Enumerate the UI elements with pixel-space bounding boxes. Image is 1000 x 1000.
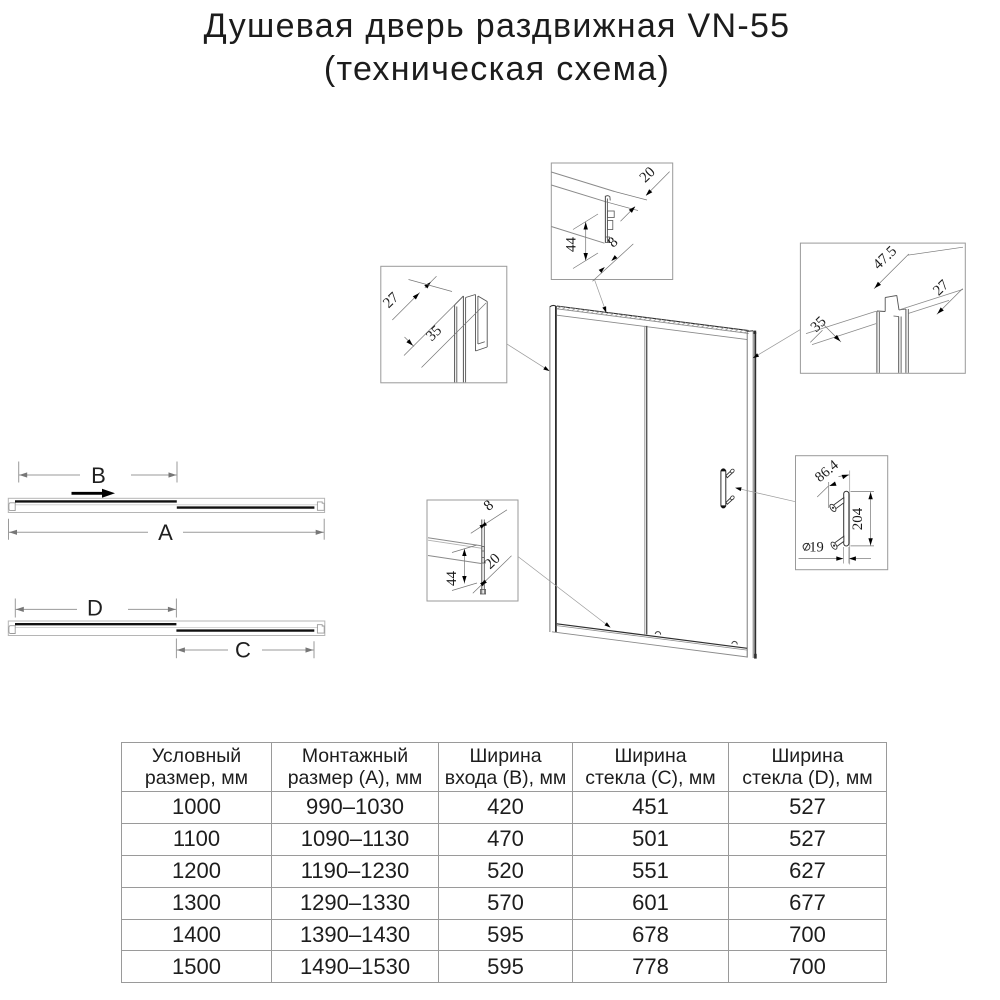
svg-text:19: 19 [809,540,824,556]
svg-text:204: 204 [850,507,866,530]
svg-text:D: D [87,596,103,621]
svg-text:B: B [91,463,106,488]
svg-text:C: C [235,638,251,663]
svg-text:44: 44 [444,571,460,587]
svg-text:A: A [158,520,173,545]
svg-text:44: 44 [564,237,580,253]
